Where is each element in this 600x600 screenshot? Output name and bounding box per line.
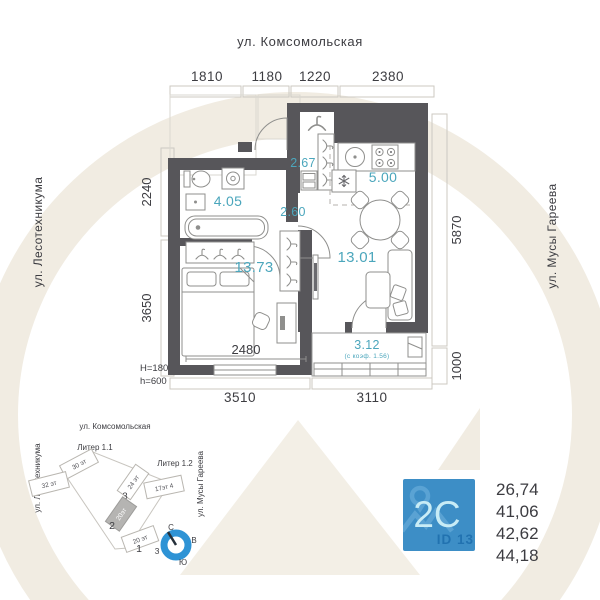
street-top-label: ул. Комсомольская <box>237 34 363 49</box>
watermark-wedge <box>180 420 420 575</box>
hall-closet <box>280 231 300 291</box>
dim-bedroom-width: 2480 <box>232 342 261 357</box>
area-wardrobe: 2.67 <box>290 156 316 170</box>
tv-icon <box>314 263 317 291</box>
compass-west: З <box>155 547 160 556</box>
sofa-chaise <box>366 272 390 308</box>
stove-icon <box>372 145 398 169</box>
kitchen-sink-icon <box>346 148 365 167</box>
dim-top-1: 1810 <box>191 69 223 84</box>
bathtub-icon <box>185 216 268 239</box>
dim-bottom-1: 3510 <box>224 390 256 405</box>
dim-right-2: 1000 <box>449 352 464 381</box>
fridge-icon <box>332 170 356 192</box>
dim-right-1: 5870 <box>449 216 464 245</box>
area-value-2: 41,06 <box>496 502 539 521</box>
minimap-liter-2: Литер 1.2 <box>157 459 193 468</box>
sink-icon <box>186 194 205 210</box>
street-left-label: ул. Лесотехникума <box>31 177 45 288</box>
kitchen-fixtures <box>330 143 415 251</box>
area-summary: 26,74 41,06 42,62 44,18 <box>496 480 539 565</box>
area-value-4: 44,18 <box>496 546 539 565</box>
area-hall: 2.60 <box>280 205 306 219</box>
bedroom-fixtures: 2480 <box>182 231 306 362</box>
area-value-3: 42,62 <box>496 524 539 543</box>
balcony-ac-unit <box>408 337 422 357</box>
compass: С В З Ю <box>155 523 197 567</box>
compass-north: С <box>168 523 174 532</box>
building-4: 17эт 4 <box>144 475 184 499</box>
compass-east: В <box>191 536 196 545</box>
table-icon <box>360 200 400 240</box>
minimap-street-right: ул. Мусы Гареева <box>196 451 205 517</box>
dining-table <box>349 189 410 250</box>
watermark-wedge-2 <box>438 408 480 470</box>
dim-top-4: 2380 <box>372 69 404 84</box>
area-value-1: 26,74 <box>496 480 539 499</box>
area-kitchen: 5.00 <box>369 169 397 185</box>
dimensions-bottom: 3510 3110 <box>170 378 432 405</box>
washing-machine-icon <box>222 168 244 189</box>
building-1-number: 1 <box>136 543 142 555</box>
area-bedroom: 13.73 <box>234 259 273 276</box>
minimap-street-top: ул. Комсомольская <box>79 422 150 431</box>
monitor-icon <box>280 316 285 330</box>
desk-and-chair <box>251 303 296 343</box>
toilet-icon <box>184 171 210 187</box>
dim-left-2: 3650 <box>139 294 154 323</box>
building-2-number: 2 <box>109 520 115 532</box>
dim-top-2: 1180 <box>251 69 282 84</box>
area-balcony: 3.12 <box>354 338 380 352</box>
dim-bottom-2: 3110 <box>356 390 387 405</box>
area-living: 13.01 <box>337 249 376 266</box>
window-height-h: h=600 <box>140 376 167 387</box>
badge-id: ID 13 <box>437 532 474 547</box>
dim-top-3: 1220 <box>299 69 331 84</box>
street-right-label: ул. Мусы Гареева <box>545 183 559 288</box>
pillow-icon <box>393 300 409 316</box>
compass-south: Ю <box>179 558 187 567</box>
apartment-badge[interactable]: 2С ID 13 <box>402 479 475 551</box>
minimap-liter-1: Литер 1.1 <box>77 443 113 452</box>
floorplan-svg: ул. Комсомольская ул. Лесотехникума ул. … <box>0 0 600 600</box>
badge-type: 2С <box>413 494 460 535</box>
minimap: ул. Комсомольская ул. Лесотехникума ул. … <box>29 422 205 567</box>
dim-left-1: 2240 <box>139 178 154 207</box>
area-bathroom: 4.05 <box>214 193 242 209</box>
area-balcony-note: (с коэф. 1.56) <box>344 353 389 360</box>
drawer-unit <box>301 171 317 190</box>
floorplan-page: ул. Комсомольская ул. Лесотехникума ул. … <box>0 0 600 600</box>
desk-icon <box>277 303 296 343</box>
